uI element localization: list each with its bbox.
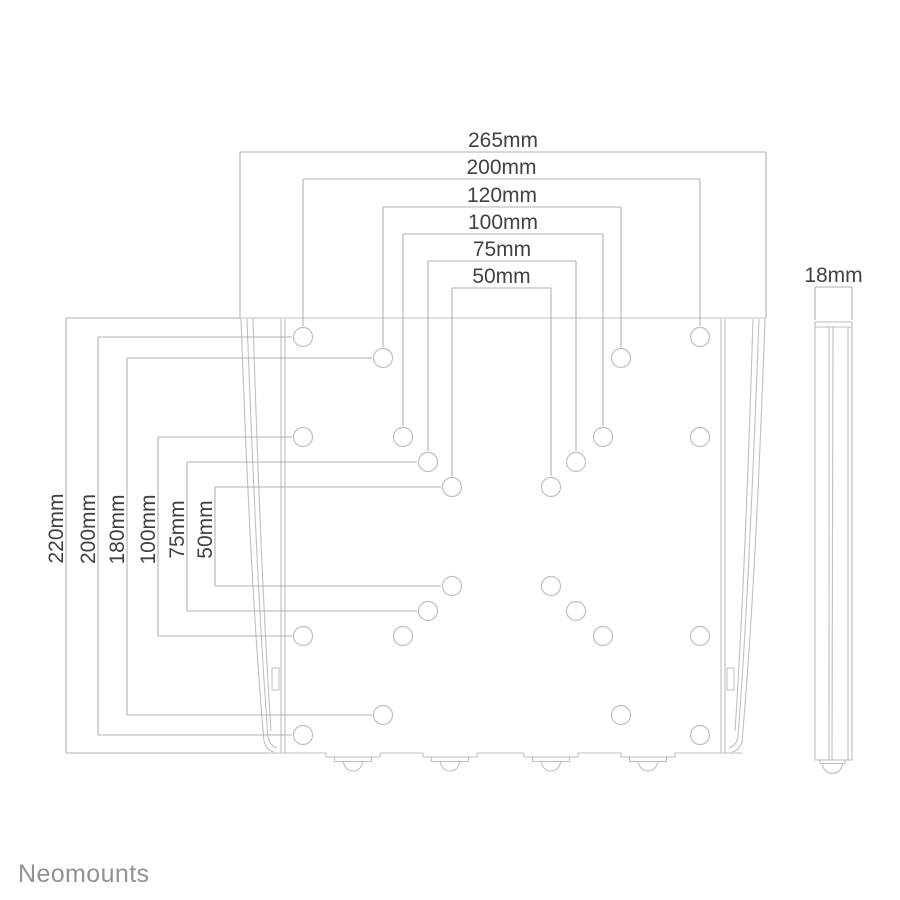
mounting-hole — [443, 577, 462, 596]
mounting-hole — [567, 602, 586, 621]
right-flange-slot — [727, 668, 734, 690]
side-view: 18mm — [804, 264, 862, 774]
right-flange-outer-curve — [732, 319, 765, 752]
dim-label-265mm: 265mm — [468, 129, 538, 152]
side-view-inner-line — [832, 327, 833, 760]
clip-tab — [335, 757, 372, 762]
left-flange-slot — [272, 668, 279, 690]
dim-label-220mm: 220mm — [45, 493, 68, 563]
mounting-hole — [294, 627, 313, 646]
dim-label-120mm: 120mm — [467, 184, 537, 207]
mounting-hole — [294, 726, 313, 745]
clip-tab — [533, 757, 570, 762]
mounting-hole — [294, 328, 313, 347]
mounting-hole — [294, 428, 313, 447]
mounting-hole — [542, 577, 561, 596]
top-dimensions: 265mm200mm120mm100mm75mm50mm — [240, 129, 766, 476]
mounting-hole — [374, 706, 393, 725]
mounting-hole — [374, 349, 393, 368]
dim-label-50mm: 50mm — [472, 265, 530, 288]
dim-label-100mm: 100mm — [468, 211, 538, 234]
clip-bump — [441, 762, 460, 772]
dim-label-50mm: 50mm — [194, 500, 217, 558]
bracket-dimension-diagram: 265mm200mm120mm100mm75mm50mm220mm200mm18… — [0, 0, 900, 900]
mounting-hole — [443, 478, 462, 497]
mounting-hole — [419, 453, 438, 472]
front-view — [240, 318, 766, 771]
neomounts-logo: Neomounts — [18, 860, 149, 889]
clip-bump — [542, 762, 561, 772]
dim-label-180mm: 180mm — [106, 494, 129, 564]
left-flange-outer-curve — [241, 319, 274, 752]
mounting-hole — [394, 627, 413, 646]
mounting-hole — [612, 706, 631, 725]
mounting-hole — [419, 602, 438, 621]
clip-tab — [432, 757, 469, 762]
mounting-hole — [594, 428, 613, 447]
dim-label-200mm: 200mm — [466, 156, 536, 179]
mounting-hole — [691, 428, 710, 447]
mounting-hole — [542, 478, 561, 497]
mounting-hole — [612, 349, 631, 368]
mounting-hole — [567, 453, 586, 472]
mounting-hole — [394, 428, 413, 447]
mounting-hole — [691, 328, 710, 347]
dim-label-18mm: 18mm — [804, 264, 862, 287]
side-view-profile — [815, 322, 852, 760]
mounting-hole — [691, 726, 710, 745]
clip-bump — [344, 762, 363, 772]
side-view-clip-bump — [823, 764, 843, 774]
clip-bump — [639, 762, 658, 772]
dim-label-100mm: 100mm — [137, 494, 160, 564]
dim-label-75mm: 75mm — [166, 500, 189, 558]
dim-label-200mm: 200mm — [77, 494, 100, 564]
mounting-hole — [594, 627, 613, 646]
plate-bottom-edge — [264, 753, 742, 757]
mounting-hole — [691, 627, 710, 646]
clip-tab — [630, 757, 667, 762]
dim-label-75mm: 75mm — [473, 238, 531, 261]
